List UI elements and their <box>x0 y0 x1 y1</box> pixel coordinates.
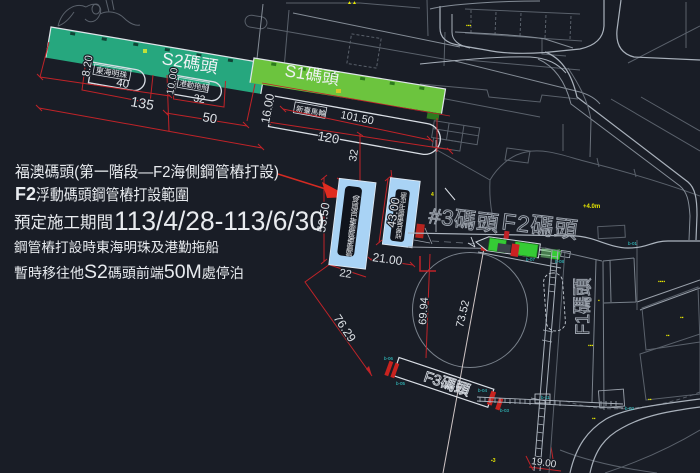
svg-text:69.94: 69.94 <box>417 297 431 325</box>
svg-text:▪▪▪▪: ▪▪▪▪ <box>658 279 665 285</box>
svg-text:鋼管樁打設時東海明珠及港勤拖船: 鋼管樁打設時東海明珠及港勤拖船 <box>14 239 219 255</box>
svg-text:▪▪: ▪▪ <box>592 416 596 422</box>
svg-text:F2浮動碼頭鋼管樁打設範圍: F2浮動碼頭鋼管樁打設範圍 <box>15 184 189 204</box>
svg-text:50: 50 <box>201 109 218 126</box>
svg-text:b-02: b-02 <box>625 406 635 411</box>
svg-text:b-07: b-07 <box>526 257 536 262</box>
svg-text:▪▪▪: ▪▪▪ <box>466 23 472 29</box>
svg-text:暫時移往他S2碼頭前端50M處停泊: 暫時移往他S2碼頭前端50M處停泊 <box>14 261 244 283</box>
svg-text:▪▪: ▪▪ <box>648 397 652 403</box>
svg-text:4: 4 <box>431 192 434 198</box>
svg-text:b-01: b-01 <box>628 241 638 246</box>
svg-text:福澳碼頭(第一階段—F2海側鋼管樁打設): 福澳碼頭(第一階段—F2海側鋼管樁打設) <box>15 163 279 181</box>
svg-text:▪3: ▪3 <box>491 458 496 464</box>
svg-text:▪▪▪: ▪▪▪ <box>588 343 594 349</box>
svg-text:113/4/28-113/6/30: 113/4/28-113/6/30 <box>114 206 324 236</box>
svg-text:b-06: b-06 <box>384 356 394 361</box>
svg-text:22: 22 <box>339 267 353 281</box>
svg-text:32: 32 <box>347 148 361 162</box>
svg-text:+4.0m: +4.0m <box>583 204 600 210</box>
svg-text:▪▪: ▪▪ <box>680 315 684 321</box>
svg-text:b-05: b-05 <box>396 381 406 386</box>
svg-text:▪: ▪ <box>598 298 600 304</box>
svg-text:▪▪: ▪▪ <box>666 333 670 339</box>
svg-text:b-11: b-11 <box>541 395 550 400</box>
svg-text:b-04: b-04 <box>478 388 488 393</box>
svg-text:b-08: b-08 <box>555 259 565 264</box>
svg-text:▲▲: ▲▲ <box>347 0 357 6</box>
svg-text:預定施工期間: 預定施工期間 <box>14 213 113 232</box>
svg-text:F1碼頭: F1碼頭 <box>572 278 594 335</box>
svg-text:b-03: b-03 <box>500 408 510 413</box>
